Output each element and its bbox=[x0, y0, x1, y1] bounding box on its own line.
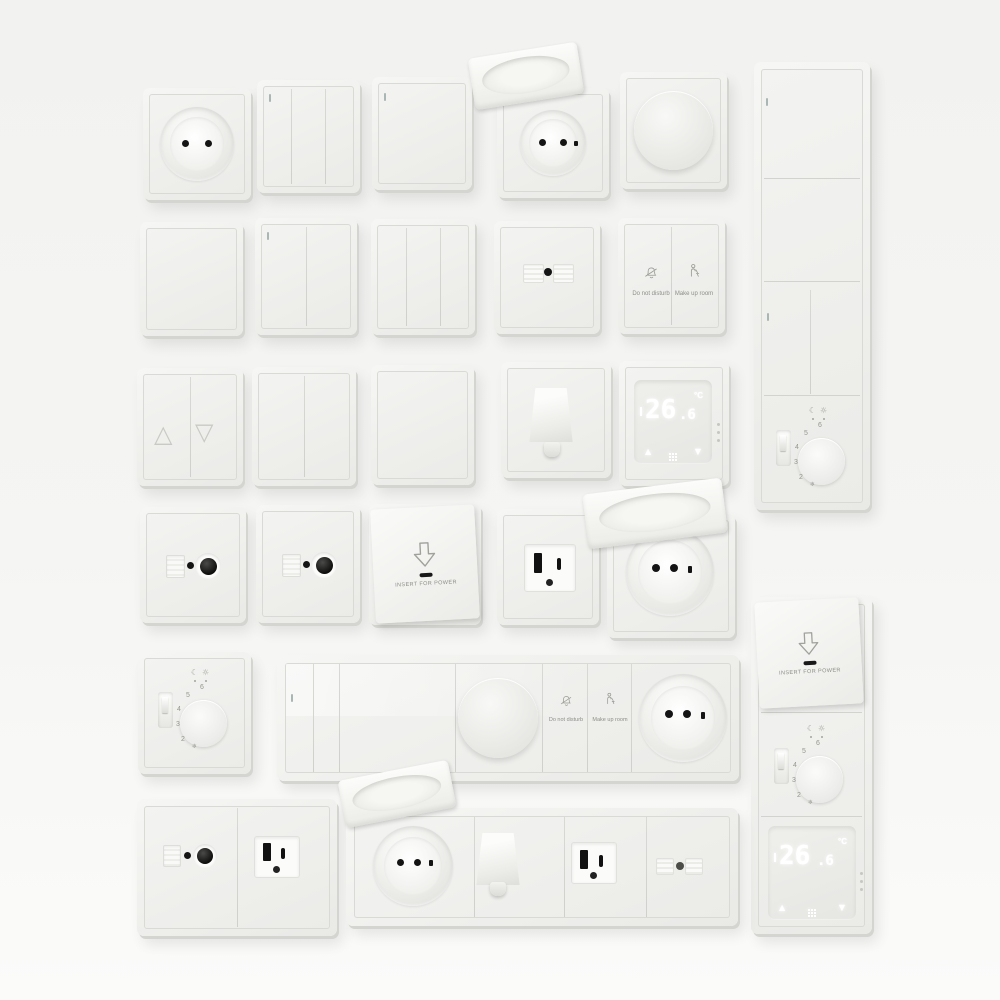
dial-scale-5: 5 bbox=[186, 692, 190, 699]
indicator-dot bbox=[812, 418, 814, 420]
socket-recess bbox=[529, 119, 577, 167]
card-slot[interactable] bbox=[419, 573, 432, 578]
menu-grid-icon[interactable] bbox=[808, 909, 810, 911]
render-canvas: ☾ ☼ 6 5 4 3 2 ❄ bbox=[0, 0, 1000, 1000]
thermostat-toggle-switch[interactable] bbox=[776, 430, 791, 466]
temp-down-button[interactable]: ▼ bbox=[695, 447, 701, 456]
earth-slit bbox=[429, 860, 433, 866]
center-hole bbox=[676, 862, 684, 870]
indicator-dot bbox=[194, 680, 196, 682]
pin-hole-left bbox=[652, 564, 660, 572]
make-up-room-label: Make up room bbox=[674, 291, 714, 298]
dial-scale-4: 4 bbox=[793, 762, 797, 769]
outlet-slot-live bbox=[281, 848, 285, 859]
pin-hole-right bbox=[414, 859, 421, 866]
plate-keycard-switch: INSERT FOR POWER bbox=[369, 504, 481, 625]
thermostat-toggle-switch[interactable] bbox=[158, 692, 173, 728]
data-port[interactable] bbox=[163, 845, 181, 867]
rocker-divider bbox=[304, 376, 305, 477]
coax-connector[interactable] bbox=[311, 552, 337, 578]
module-divider bbox=[764, 281, 860, 282]
pin-hole-left bbox=[182, 140, 189, 147]
module-divider bbox=[646, 817, 647, 917]
rocker-divider bbox=[631, 664, 632, 772]
outlet-ground-hole bbox=[546, 579, 553, 586]
night-mode-icon: ☾ bbox=[809, 406, 816, 415]
schuko-socket[interactable] bbox=[639, 674, 727, 762]
plate-dimmer bbox=[620, 72, 727, 189]
coax-connector[interactable] bbox=[193, 844, 217, 868]
switch-rocker-area[interactable] bbox=[263, 86, 354, 187]
center-hole bbox=[303, 561, 310, 568]
pin-hole-right bbox=[205, 140, 212, 147]
coax-pin bbox=[316, 557, 333, 574]
plate-data-socket bbox=[494, 221, 600, 334]
dimmer-knob[interactable] bbox=[458, 678, 538, 758]
socket-recess bbox=[170, 117, 223, 170]
schuko-socket[interactable] bbox=[520, 110, 586, 176]
us-outlet[interactable] bbox=[571, 842, 617, 884]
led-indicator bbox=[766, 98, 768, 106]
plate-switch-3gang bbox=[257, 80, 360, 193]
frost-protection-icon: ❄ bbox=[808, 799, 813, 806]
euro-socket[interactable] bbox=[160, 107, 234, 181]
plate-euro-socket bbox=[143, 88, 251, 200]
us-outlet[interactable] bbox=[524, 544, 576, 592]
rocker-divider bbox=[339, 664, 340, 772]
toggle-lever bbox=[780, 435, 786, 451]
plate-face bbox=[500, 227, 594, 328]
rocker-divider bbox=[810, 290, 811, 394]
rocker-divider bbox=[440, 228, 441, 326]
dial-thermostat: ☾ ☼ 6 5 4 3 2 ❄ bbox=[144, 658, 244, 764]
switch-rocker-area[interactable] bbox=[377, 371, 468, 479]
center-hole bbox=[184, 852, 191, 859]
indicator-dot bbox=[821, 736, 823, 738]
indicator-dot bbox=[205, 680, 207, 682]
rocker-divider bbox=[542, 664, 543, 772]
dial-scale-6: 6 bbox=[200, 684, 204, 691]
data-port-left[interactable] bbox=[523, 264, 544, 283]
rocker-divider bbox=[587, 664, 588, 772]
earth-slit bbox=[688, 566, 692, 573]
keycard-label: INSERT FOR POWER bbox=[779, 667, 841, 676]
day-mode-icon: ☼ bbox=[202, 668, 209, 677]
data-port-right[interactable] bbox=[685, 858, 703, 875]
outlet-slot-live bbox=[557, 558, 561, 570]
outlet-ground-hole bbox=[590, 872, 597, 879]
dial-scale-6: 6 bbox=[818, 422, 822, 429]
outlet-slot-neutral bbox=[263, 843, 271, 861]
dial-scale-3: 3 bbox=[794, 459, 798, 466]
mode-indicator-icon bbox=[774, 853, 776, 862]
rocker-divider bbox=[325, 89, 326, 184]
indicator-dot bbox=[810, 736, 812, 738]
plate-switch-1gang bbox=[372, 77, 472, 190]
coax-pin bbox=[200, 558, 217, 575]
rocker-divider bbox=[291, 89, 292, 184]
housekeeping-icon bbox=[685, 262, 703, 280]
module-divider bbox=[237, 808, 238, 927]
center-hole bbox=[187, 562, 194, 569]
plate-hotel-switch: Do not disturb Make up room bbox=[618, 218, 725, 334]
thermostat-dial-knob[interactable] bbox=[180, 700, 227, 747]
pin-hole-left bbox=[665, 710, 673, 718]
make-up-room-label: Make up room bbox=[589, 717, 631, 724]
dial-scale-5: 5 bbox=[802, 748, 806, 755]
pin-hole-right bbox=[683, 710, 691, 718]
pin-hole-right bbox=[670, 564, 678, 572]
blinds-down-icon: ▽ bbox=[195, 420, 213, 444]
outlet-slot-neutral bbox=[580, 850, 588, 869]
module-divider bbox=[474, 817, 475, 917]
socket-recess bbox=[638, 540, 701, 603]
rocker-divider bbox=[306, 227, 307, 326]
thermostat-toggle-switch[interactable] bbox=[774, 748, 789, 784]
led-indicator bbox=[267, 232, 269, 240]
day-mode-icon: ☼ bbox=[818, 724, 825, 733]
night-mode-icon: ☾ bbox=[807, 724, 814, 733]
plate-switch-blank bbox=[371, 365, 474, 485]
earth-slit bbox=[574, 141, 578, 146]
cable-nozzle bbox=[490, 882, 506, 896]
rocker-divider bbox=[313, 664, 314, 772]
plate-covered-socket bbox=[497, 88, 609, 198]
dial-thermostat: ☾ ☼ 6 5 4 3 2 ❄ bbox=[762, 396, 862, 502]
dial-scale-4: 4 bbox=[795, 444, 799, 451]
plate-switch-3gang bbox=[371, 219, 475, 335]
switch-rocker-area[interactable] bbox=[146, 228, 237, 330]
dial-scale-4: 4 bbox=[177, 706, 181, 713]
cable-outlet-hood bbox=[475, 833, 521, 885]
plate-switch-2gang bbox=[255, 218, 357, 335]
plate-tv-socket bbox=[256, 505, 360, 623]
dimmer-knob[interactable] bbox=[634, 91, 713, 170]
temp-up-button[interactable]: ▲ bbox=[645, 447, 651, 456]
dial-scale-3: 3 bbox=[176, 721, 180, 728]
indicator-dot bbox=[823, 418, 825, 420]
menu-grid-icon[interactable] bbox=[669, 453, 671, 455]
housekeeping-icon bbox=[602, 691, 618, 707]
plate-curtain-switch: △ ▽ bbox=[137, 368, 243, 486]
dial-scale-2: 2 bbox=[799, 474, 803, 481]
plate-combination-outlet-strip bbox=[346, 808, 738, 926]
digital-thermostat-screen: 26 .6 °C ▲ ▼ bbox=[768, 826, 856, 920]
day-mode-icon: ☼ bbox=[820, 406, 827, 415]
dial-scale-6: 6 bbox=[816, 740, 820, 747]
rocker-divider bbox=[406, 228, 407, 326]
data-port-right[interactable] bbox=[553, 264, 574, 283]
rocker-divider bbox=[671, 227, 672, 325]
plate-combination-panel: Do not disturb Make up room bbox=[277, 655, 739, 781]
led-indicator bbox=[269, 94, 271, 102]
pin-hole-right bbox=[560, 139, 567, 146]
us-outlet[interactable] bbox=[254, 836, 300, 878]
dial-scale-3: 3 bbox=[792, 777, 796, 784]
dial-scale-2: 2 bbox=[181, 736, 185, 743]
dial-scale-2: 2 bbox=[797, 792, 801, 799]
plate-switch-blank bbox=[140, 222, 243, 336]
center-hole bbox=[544, 268, 552, 276]
dial-thermostat: ☾ ☼ 6 5 4 3 2 ❄ bbox=[760, 714, 860, 820]
toggle-lever bbox=[162, 697, 168, 713]
module-divider bbox=[761, 712, 862, 713]
pin-hole-left bbox=[397, 859, 404, 866]
led-indicator bbox=[291, 694, 293, 702]
keycard-holder[interactable]: INSERT FOR POWER bbox=[754, 597, 863, 708]
bell-slash-icon bbox=[642, 264, 660, 282]
temp-up-button[interactable]: ▲ bbox=[779, 903, 785, 912]
outlet-ground-hole bbox=[273, 866, 280, 873]
thermostat-dial-knob[interactable] bbox=[796, 756, 843, 803]
outlet-slot-neutral bbox=[534, 553, 542, 573]
data-port-left[interactable] bbox=[656, 858, 674, 875]
insert-arrow-icon bbox=[796, 630, 821, 657]
mode-indicator-icon bbox=[640, 407, 642, 416]
plate-cable-outlet bbox=[501, 362, 611, 478]
temperature-unit: °C bbox=[694, 391, 703, 400]
side-indicator-dots bbox=[860, 872, 863, 875]
switch-rocker-area[interactable] bbox=[378, 83, 466, 184]
pin-hole-left bbox=[539, 139, 546, 146]
plate-double-media-outlet bbox=[137, 799, 337, 936]
night-mode-icon: ☾ bbox=[191, 668, 198, 677]
led-indicator bbox=[767, 313, 769, 321]
plate-tv-socket bbox=[140, 507, 246, 623]
temperature-integer: 26 bbox=[779, 841, 810, 871]
toggle-lever bbox=[778, 753, 784, 769]
temperature-integer: 26 bbox=[645, 395, 676, 425]
digital-thermostat-screen: 26 .6 °C ▲ ▼ bbox=[634, 380, 712, 464]
bell-slash-icon bbox=[558, 693, 574, 709]
frost-protection-icon: ❄ bbox=[810, 481, 815, 488]
plate-switch-2gang bbox=[252, 367, 356, 486]
module-divider bbox=[564, 817, 565, 917]
coax-pin bbox=[197, 848, 213, 864]
socket-recess bbox=[651, 686, 714, 749]
earth-slit bbox=[701, 712, 705, 719]
led-indicator bbox=[384, 93, 386, 101]
cable-nozzle bbox=[544, 442, 560, 457]
rocker-divider bbox=[455, 664, 456, 772]
temperature-decimal: .6 bbox=[817, 853, 834, 869]
switch-rocker-area[interactable] bbox=[377, 225, 469, 329]
side-indicator-dots bbox=[717, 423, 720, 426]
outlet-slot-live bbox=[599, 855, 603, 867]
frost-protection-icon: ❄ bbox=[192, 743, 197, 750]
socket-recess bbox=[384, 837, 442, 895]
insert-arrow-icon bbox=[411, 540, 438, 569]
plate-digital-thermostat: 26 .6 °C ▲ ▼ bbox=[619, 361, 729, 486]
blinds-up-icon: △ bbox=[154, 422, 172, 446]
temperature-decimal: .6 bbox=[679, 407, 696, 423]
cable-outlet-hood bbox=[528, 388, 574, 442]
keycard-label: INSERT FOR POWER bbox=[395, 579, 457, 588]
temp-down-button[interactable]: ▼ bbox=[839, 903, 845, 912]
plate-us-outlet bbox=[497, 509, 599, 625]
do-not-disturb-label: Do not disturb bbox=[631, 291, 671, 298]
thermostat-dial-knob[interactable] bbox=[798, 438, 845, 485]
data-port[interactable] bbox=[166, 555, 185, 578]
temperature-unit: °C bbox=[838, 837, 847, 846]
do-not-disturb-label: Do not disturb bbox=[545, 717, 587, 724]
schuko-socket[interactable] bbox=[373, 826, 453, 906]
rocker-divider bbox=[190, 377, 191, 477]
coax-connector[interactable] bbox=[195, 553, 221, 579]
keycard-holder[interactable]: INSERT FOR POWER bbox=[370, 504, 480, 623]
data-port[interactable] bbox=[282, 554, 301, 577]
card-slot[interactable] bbox=[803, 661, 816, 666]
dial-scale-5: 5 bbox=[804, 430, 808, 437]
module-divider bbox=[764, 178, 860, 179]
